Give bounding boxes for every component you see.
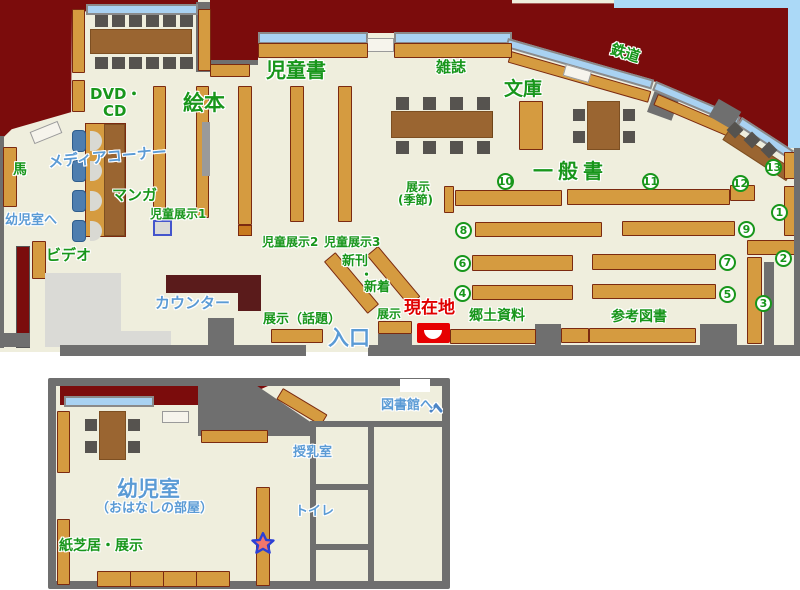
area-label-new-books-line1: 新刊 [342,255,368,269]
bookshelf [592,254,716,270]
chair [129,15,142,27]
wall [794,148,800,352]
area-label-reference-books: 参考図書 [611,310,667,325]
bookshelf [592,284,716,299]
label-nursing-room: 授乳室 [293,446,332,460]
chair [146,57,159,69]
chair [72,130,86,152]
area-label-video: ビデオ [46,248,91,264]
star-icon [250,531,276,557]
chair [112,57,125,69]
area-label-local-materials: 郷土資料 [469,309,525,324]
bookshelf [338,86,352,222]
shelf-number-12: 12 [732,175,749,192]
seasonal-display-shelf [444,186,454,213]
bookshelf [472,285,573,300]
label-picture-story-display: 紙芝居・展示 [59,539,143,554]
shelf-number-5: 5 [719,286,736,303]
chair [396,141,409,154]
label-to-library: 図書館へ [381,399,433,413]
chair [128,441,140,453]
pillar [535,324,561,346]
chair [396,97,409,110]
bookshelf [455,190,562,206]
service-counter [238,275,261,311]
bookshelf [163,571,197,587]
bookshelf [258,43,368,58]
area-label-to-infant-room: 幼児室へ [5,214,57,228]
bookshelf [472,255,573,271]
bookshelf [210,64,250,77]
shelf-number-2: 2 [775,250,792,267]
bookshelf [198,9,211,71]
reading-table [587,101,620,150]
chair [423,141,436,154]
chair [180,15,193,27]
area-label-topical-display: 展示（話題） [263,313,341,327]
bookshelf [475,222,602,237]
chair [95,57,108,69]
area-label-magazines: 雑誌 [436,60,466,76]
area-label-new-books-line2: 新着 [364,281,390,295]
current-location-label: 現在地 [404,300,455,318]
chair [623,109,635,121]
wall [60,345,306,356]
chair [450,141,463,154]
bookshelf [622,221,735,236]
chair [450,97,463,110]
area-label-counter: カウンター [155,296,230,312]
room-wall [368,421,374,588]
bookshelf [238,86,252,225]
area-label-general-books: 一般書 [533,161,608,182]
entrance-label: 入口 [328,327,370,349]
bookshelf [519,101,543,150]
pillar [208,318,234,346]
shelf-number-4: 4 [454,285,471,302]
chair [623,131,635,143]
shelf-number-10: 10 [497,173,514,190]
chair [573,109,585,121]
outside-top [614,0,800,8]
area-label-cd: CD [103,104,126,120]
chair [128,419,140,431]
bookshelf [589,328,696,343]
bookshelf [567,189,730,205]
label-infant-room: 幼児室 [117,478,180,500]
chair [163,15,176,27]
bookshelf [290,86,304,222]
area-label-dvd: DVD・ [90,87,142,103]
shelf-number-13: 13 [765,159,782,176]
bookshelf [450,329,536,344]
wall [368,345,800,356]
outside-right [788,0,800,148]
chair [72,220,86,242]
area-label-display: 展示 [377,308,401,321]
area-label-childrens-display-3: 児童展示3 [324,236,380,249]
kiosk [153,220,172,236]
shelf-number-11: 11 [642,173,659,190]
pillar [202,122,210,176]
chair [477,97,490,110]
chair [95,15,108,27]
exterior-area [210,0,258,65]
area-label-childrens-display-1: 児童展示1 [150,208,206,221]
display-case [367,38,394,52]
current-location-marker [417,323,450,343]
bookshelf [57,411,70,473]
exterior-area [256,0,512,33]
label-storytelling-room: （おはなしの部屋） [96,502,213,516]
area-label-seasonal-display-line2: (季節) [398,194,433,207]
shelf-number-8: 8 [455,222,472,239]
chair [180,57,193,69]
bookshelf [97,571,131,587]
area-label-bunko: 文庫 [504,80,542,100]
library-floor-map: 1 2 3 4 5 6 7 8 9 10 11 12 13 児童書 雑誌 文庫 … [0,0,800,590]
passage-opening [400,379,430,392]
reading-table [391,111,493,138]
wall [0,333,30,347]
display-stand [238,225,252,236]
chair [423,97,436,110]
bookshelf [72,80,85,112]
bookshelf [130,571,164,587]
shelf-number-3: 3 [755,295,772,312]
room-wall [310,484,374,490]
bookshelf [72,9,85,73]
chair [85,419,97,431]
area-label-horse: 馬 [13,163,27,178]
chair [72,190,86,212]
area-label-seasonal-display-line1: 展示 [406,181,430,194]
reading-table [99,411,126,460]
display-shelf [271,329,323,343]
label-toilet: トイレ [295,505,334,519]
window [64,396,154,407]
chair [573,131,585,143]
shelf-number-7: 7 [719,254,736,271]
media-corner-table [104,124,125,236]
area-label-childrens-display-2: 児童展示2 [262,236,318,249]
room-wall [310,421,443,427]
room-wall [310,544,374,550]
shelf-number-9: 9 [738,221,755,238]
bookshelf [394,43,512,58]
shelf-number-6: 6 [454,255,471,272]
shelf-number-1: 1 [771,204,788,221]
display-shelf [378,321,412,334]
chair [112,15,125,27]
reading-table [90,29,192,54]
current-location-icon [424,330,442,339]
chair [146,15,159,27]
bookshelf [561,328,589,343]
chair [129,57,142,69]
window [86,4,198,15]
pillar [700,324,737,346]
display-case [162,411,189,423]
bookshelf [32,241,46,279]
bookshelf [201,430,268,443]
bookshelf [196,571,230,587]
chair [85,441,97,453]
area-label-childrens-books: 児童書 [266,60,326,81]
chair [477,141,490,154]
area-label-manga: マンガ [112,188,157,204]
chair [163,57,176,69]
area-label-picture-books: 絵本 [183,92,225,114]
